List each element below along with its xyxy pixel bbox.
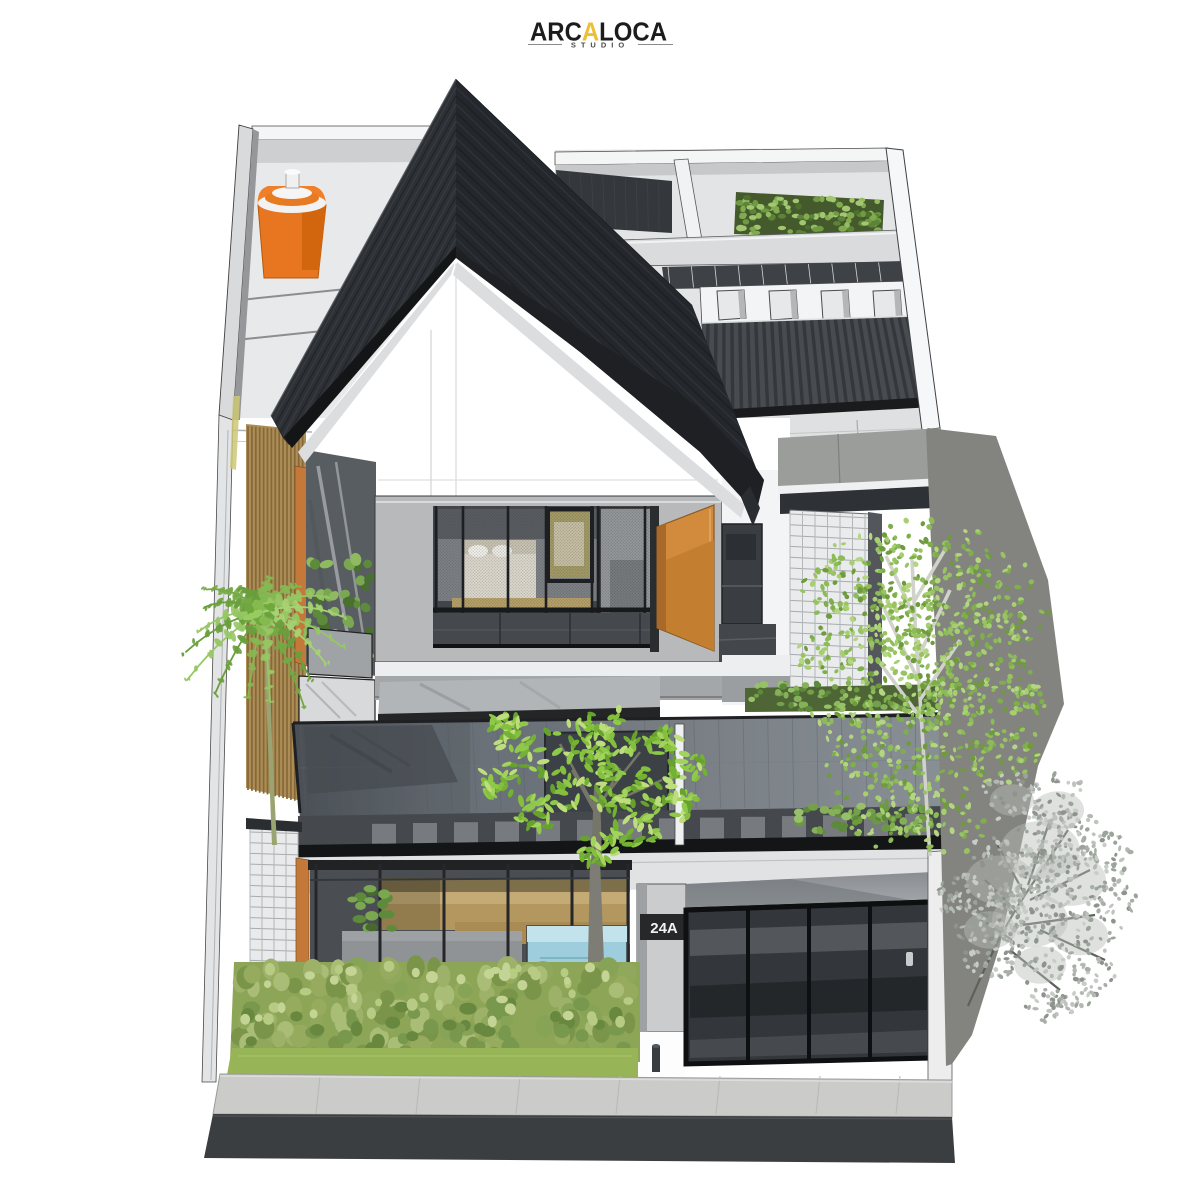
svg-text:STUDIO: STUDIO xyxy=(571,41,629,50)
svg-text:24A: 24A xyxy=(650,920,678,937)
